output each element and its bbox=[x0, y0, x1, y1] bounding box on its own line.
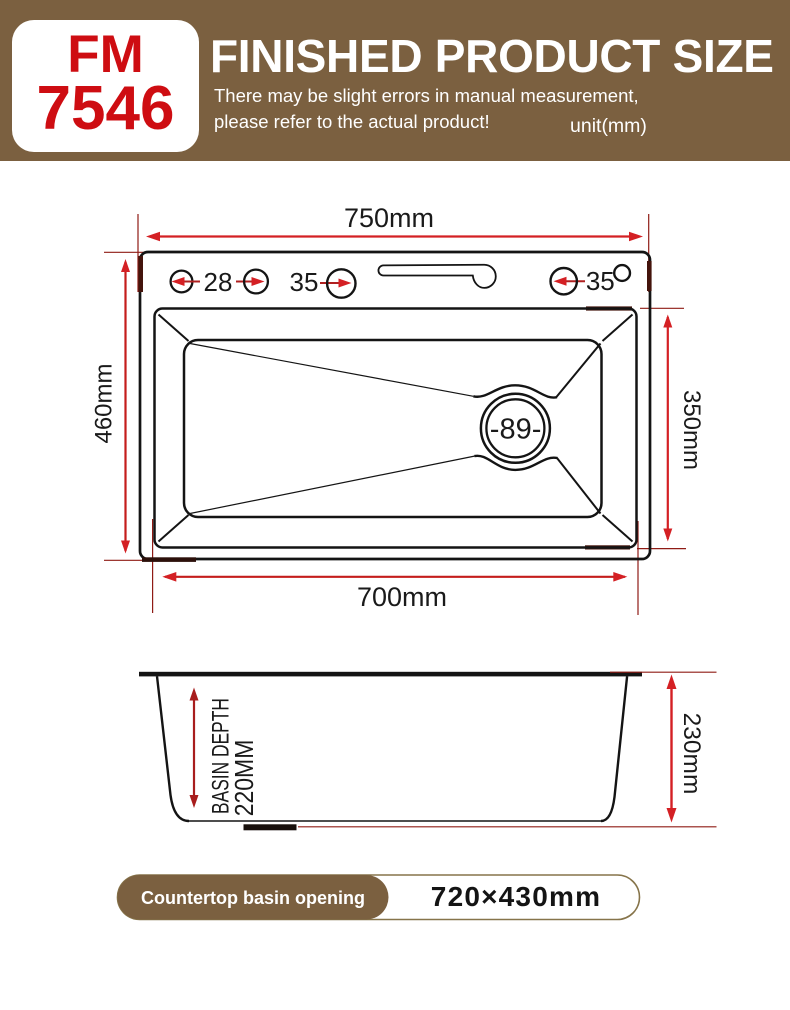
svg-text:28: 28 bbox=[204, 267, 233, 297]
svg-text:35: 35 bbox=[586, 266, 615, 296]
svg-text:-89-: -89- bbox=[490, 414, 542, 446]
svg-text:Countertop basin opening: Countertop basin opening bbox=[141, 888, 365, 908]
svg-text:460mm: 460mm bbox=[91, 363, 118, 443]
svg-text:35: 35 bbox=[290, 267, 319, 297]
svg-text:350mm: 350mm bbox=[678, 390, 705, 470]
svg-text:700mm: 700mm bbox=[357, 582, 447, 612]
svg-text:720×430mm: 720×430mm bbox=[431, 881, 601, 912]
svg-text:220MM: 220MM bbox=[231, 740, 259, 817]
svg-text:750mm: 750mm bbox=[344, 203, 434, 233]
svg-text:230mm: 230mm bbox=[678, 713, 705, 795]
